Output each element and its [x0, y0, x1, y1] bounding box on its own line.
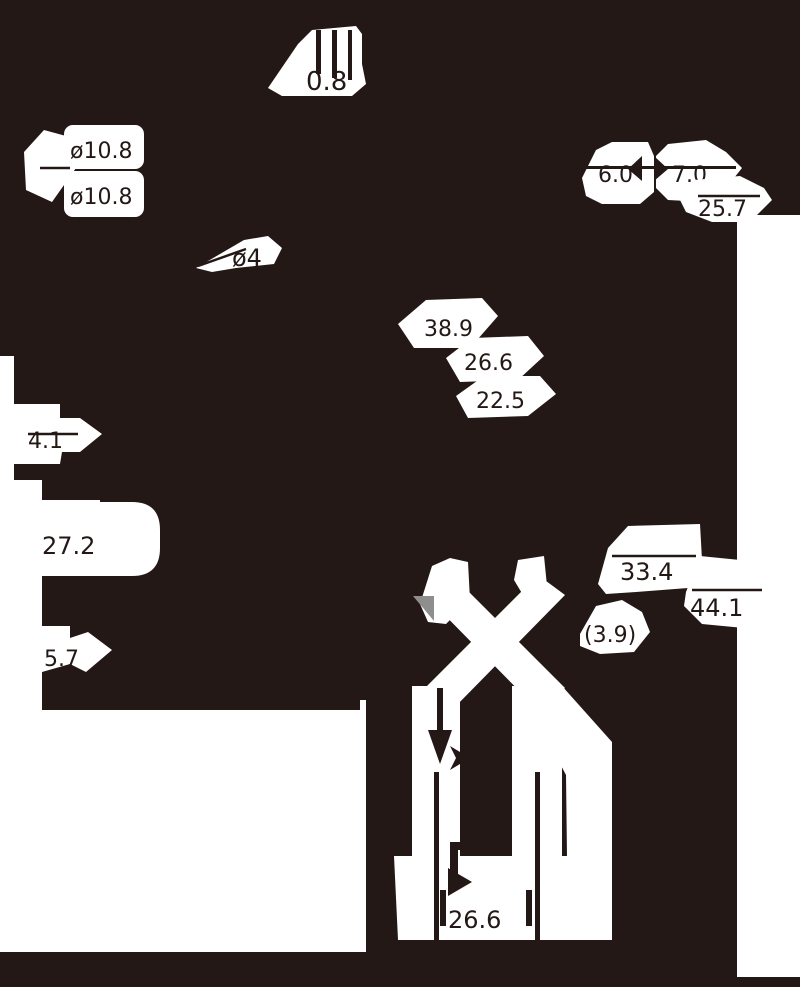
dimension-left-height: 27.2	[42, 532, 95, 560]
down-arrow-shaft	[437, 688, 443, 732]
left-sliver	[360, 700, 366, 856]
dimension-lower-span-a: 33.4	[620, 558, 673, 586]
dimension-top-thickness: 0.8	[306, 67, 347, 97]
technical-drawing-page: 0.8 ø10.8 ø10.8 ø4 6.0 7.0 25.7 38.9 26.…	[0, 0, 800, 987]
dimension-lower-span-b: 44.1	[690, 594, 743, 622]
dimension-right-offset: 25.7	[698, 197, 747, 222]
edge-line	[434, 772, 439, 940]
dimension-left-step: 4.1	[28, 429, 63, 454]
detail-round-blob	[96, 502, 160, 576]
dimension-hole-dia-bottom: ø10.8	[70, 185, 132, 210]
dimension-bottom-width: 26.6	[448, 906, 501, 934]
dimension-mid-span-a: 38.9	[424, 317, 473, 342]
extension-line	[348, 30, 352, 80]
edge-line	[535, 772, 540, 940]
dimension-right-width-a: 6.0	[598, 163, 633, 188]
dimension-mid-span-b: 26.6	[464, 351, 513, 376]
technical-drawing-canvas: 0.8 ø10.8 ø10.8 ø4 6.0 7.0 25.7 38.9 26.…	[0, 0, 800, 987]
dimension-hole-dia-top: ø10.8	[70, 139, 132, 164]
dimension-left-gap: 5.7	[44, 647, 79, 672]
extension-tick	[440, 890, 446, 926]
dimension-mid-span-c: 22.5	[476, 389, 525, 414]
extension-tick	[526, 890, 532, 926]
bottom-bridge	[394, 856, 612, 940]
dimension-small-hole-dia: ø4	[232, 244, 262, 272]
dimension-lower-ref: (3.9)	[584, 623, 636, 648]
